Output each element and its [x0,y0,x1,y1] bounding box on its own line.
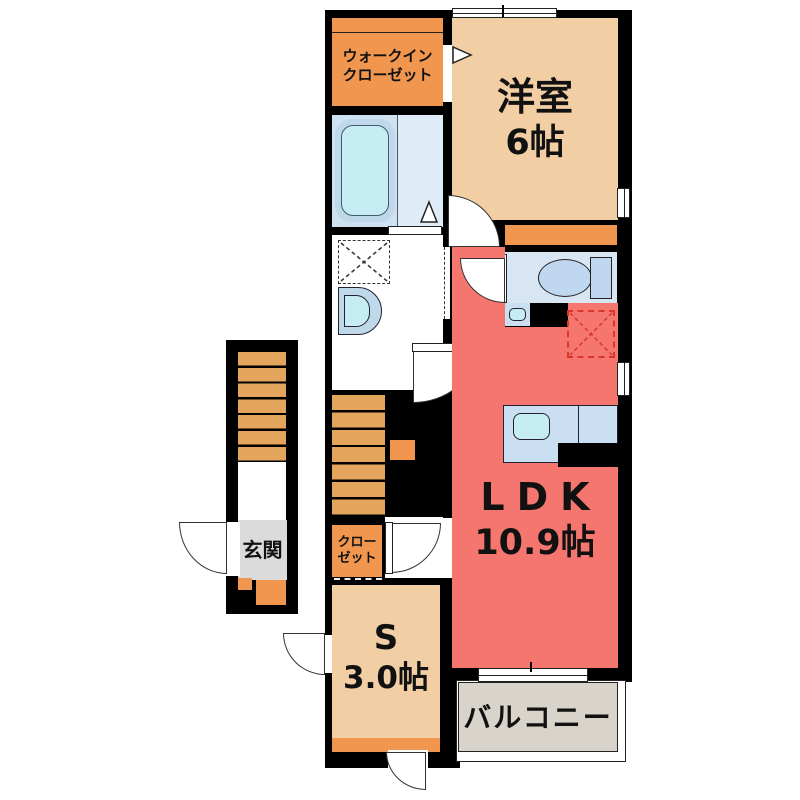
service-room-bottom-door-arc [386,752,426,790]
closet-folding-door-line [334,578,382,580]
window-western-right [617,188,630,218]
service-room-name: S [374,617,399,660]
service-room-door-leaf [385,522,393,574]
western-room-label: 洋室 6帖 [452,45,618,195]
ldk-hall-opening [443,518,452,578]
toilet-bowl [538,259,592,297]
washer-pan [338,240,390,284]
toilet-tank [590,257,612,299]
ldk-size: 10.9帖 [474,522,595,566]
ldk-name: LDK [468,474,601,522]
closet-label: クロー ゼット [337,535,376,568]
stair-landing [390,440,415,460]
balcony-label: バルコニー [463,700,612,735]
entrance-door-gap [226,522,240,576]
balcony: バルコニー [458,682,618,752]
ldk-label: LDK 10.9帖 [452,455,618,585]
window-western-top-tick [502,5,504,17]
window-balcony-tick [530,662,532,672]
window-balcony [478,668,588,682]
window-western-top [452,8,557,18]
entrance-step-small [238,578,252,590]
outside-stairs [238,352,286,462]
floor-plan: バルコニー ウォークイン クローゼット クロー ゼット S 3.0帖 [0,0,800,800]
entrance-label: 玄関 [243,538,283,563]
stair-void [238,462,286,520]
entrance-door-arc [179,522,227,574]
service-room-side-door-arc [283,633,325,675]
internal-stairs [332,395,385,517]
walk-in-closet-label: ウォークイン クローゼット [332,26,443,106]
washroom-sliding-door [441,247,450,319]
kitchen-sink [513,413,550,440]
western-room-size: 6帖 [505,122,564,166]
washbasin-bowl [344,295,370,327]
entrance-step-big [256,580,286,605]
kitchen-stove-block [558,443,618,467]
entrance-room: 玄関 [238,520,287,580]
washroom-sliding-door-line [444,247,445,319]
hand-sink-bowl [509,308,526,321]
western-room-closet-strip [505,225,617,245]
wic-sliding-door-strip [443,45,452,102]
closet-room: クロー ゼット [332,525,382,577]
western-room-name: 洋室 [497,74,573,122]
service-room-size: 3.0帖 [343,659,429,698]
refrigerator-space [567,310,615,358]
bath-sliding-door [388,226,442,235]
service-room-label: S 3.0帖 [332,595,440,720]
bathtub [341,125,389,216]
window-ldk-right [617,362,630,396]
